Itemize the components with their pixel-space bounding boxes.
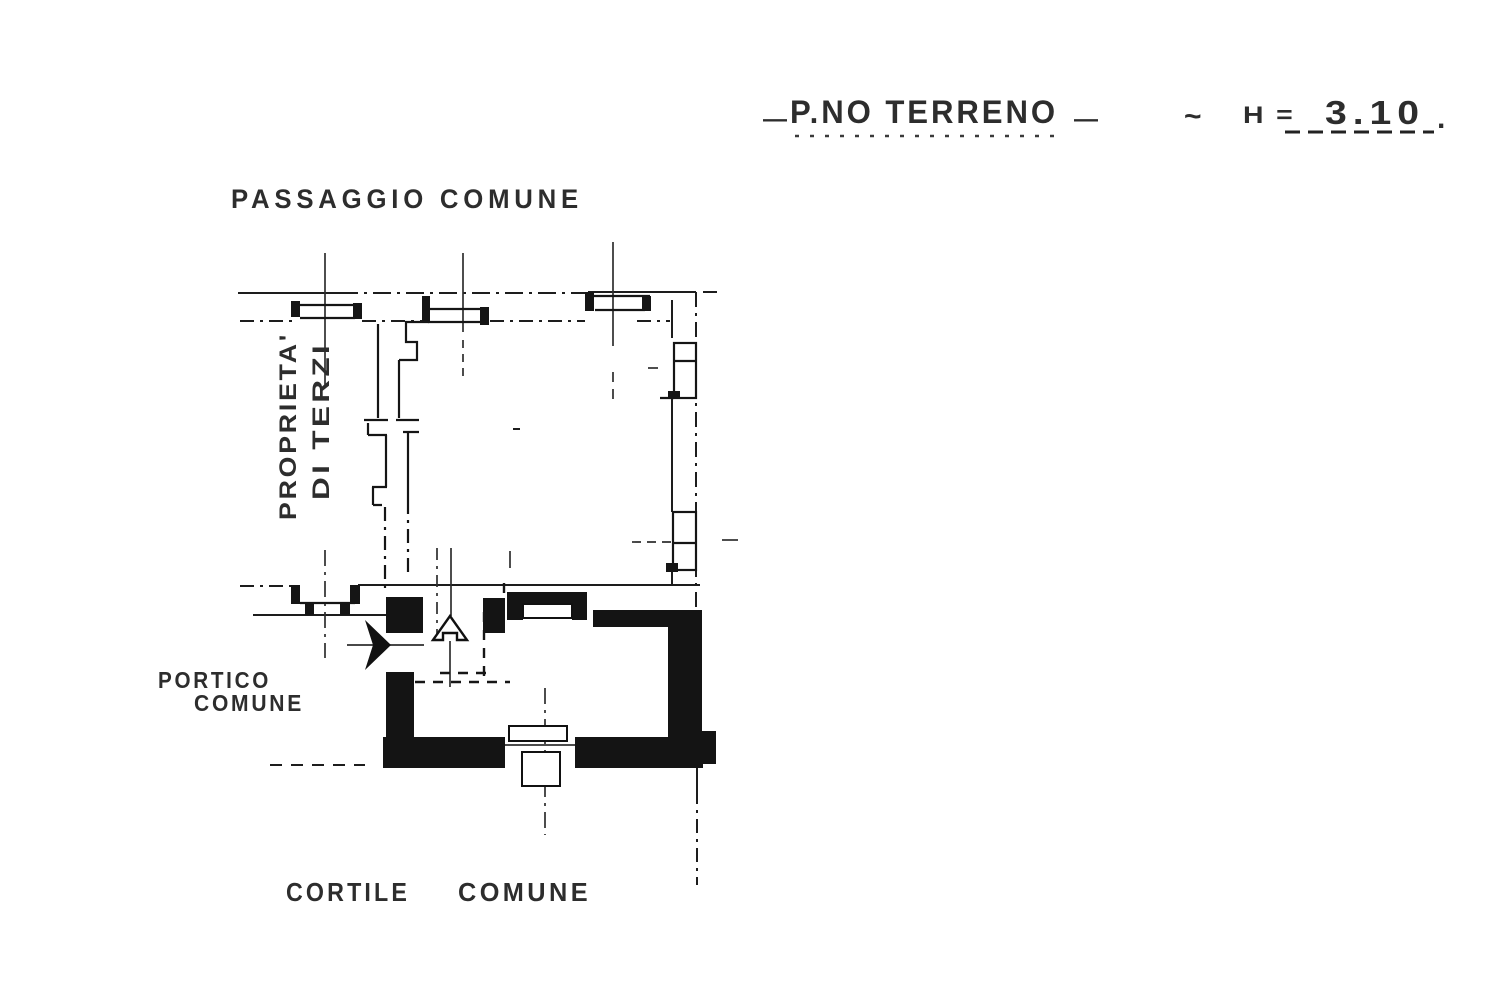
title-separator-mark: ~ (1184, 100, 1202, 133)
label-passaggio-comune: PASSAGGIO COMUNE (231, 184, 583, 214)
label-proprieta-line1: PROPRIETA' (275, 332, 302, 520)
scanned-floor-plan-page: — P.NO TERRENO — ~ H = 3.10 . PASSAGGIO … (0, 0, 1500, 999)
floor-plan-drawing: — P.NO TERRENO — ~ H = 3.10 . PASSAGGIO … (0, 0, 1500, 999)
unit-top-window (523, 604, 572, 618)
left-zigzag-wall (364, 322, 429, 590)
title-prefix-dash: — (763, 106, 787, 133)
window-top-3 (585, 292, 651, 311)
up-direction-arrow-icon (433, 616, 467, 640)
label-proprieta-line2: DI TERZI (308, 342, 335, 500)
height-label: H = (1243, 102, 1295, 129)
window-right-1 (660, 343, 696, 399)
label-cortile-line1: CORTILE (286, 877, 410, 907)
label-portico-line2: COMUNE (194, 690, 304, 716)
label-cortile-line2: COMUNE (458, 877, 591, 907)
height-period: . (1437, 102, 1445, 135)
window-top-2 (422, 296, 489, 325)
height-value: 3.10 (1325, 94, 1425, 131)
title-block: — P.NO TERRENO — ~ H = 3.10 . (763, 94, 1445, 136)
top-wall-windows (291, 292, 696, 615)
title-suffix-dash: — (1074, 106, 1098, 133)
unit-bottom-window (505, 726, 575, 786)
window-top-1 (291, 301, 362, 319)
page-title: P.NO TERRENO (790, 94, 1058, 130)
